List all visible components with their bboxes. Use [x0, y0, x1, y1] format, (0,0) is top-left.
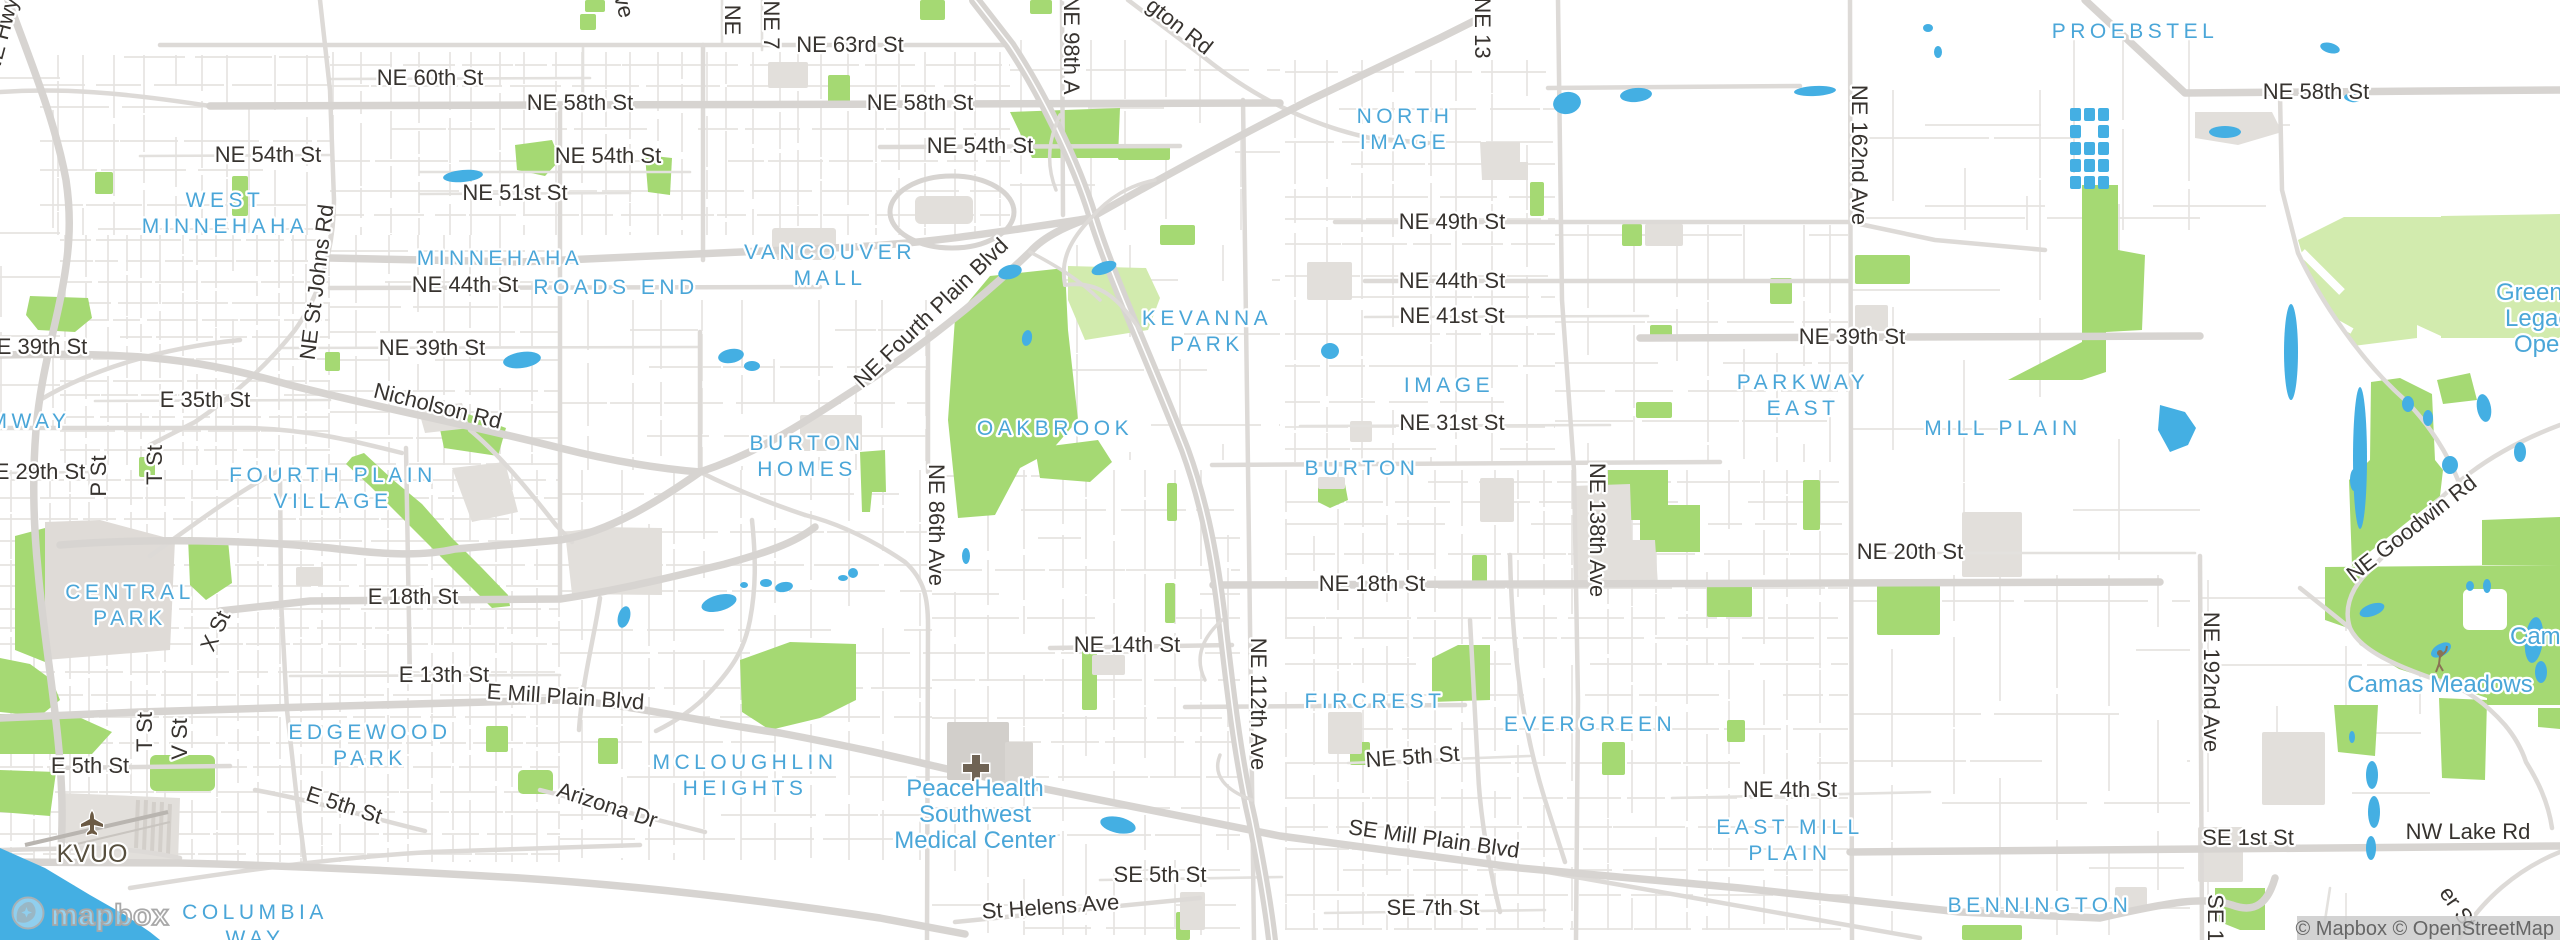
svg-text:BURTON: BURTON [1305, 457, 1420, 480]
svg-text:MILL PLAIN: MILL PLAIN [1924, 417, 2081, 440]
svg-text:OAKBROOK: OAKBROOK [977, 417, 1133, 440]
svg-text:Southwest: Southwest [919, 801, 1031, 828]
svg-text:NE 54th St: NE 54th St [555, 143, 661, 168]
svg-text:NE 39th St: NE 39th St [379, 335, 485, 360]
svg-text:NE 44th St: NE 44th St [412, 272, 518, 297]
svg-text:NE 7: NE 7 [759, 1, 784, 50]
svg-text:P St: P St [86, 455, 111, 496]
svg-text:NE 162nd Ave: NE 162nd Ave [1847, 85, 1872, 225]
svg-text:NE 39th St: NE 39th St [1799, 324, 1905, 349]
svg-text:SE 5th St: SE 5th St [1114, 862, 1207, 887]
svg-text:NE 20th St: NE 20th St [1857, 539, 1963, 564]
svg-text:NE 60th St: NE 60th St [377, 65, 483, 90]
svg-text:NE 138th Ave: NE 138th Ave [1585, 463, 1610, 597]
svg-text:MCLOUGHLIN: MCLOUGHLIN [652, 751, 837, 774]
svg-text:NE 4th St: NE 4th St [1743, 777, 1837, 802]
svg-text:NE 63rd St: NE 63rd St [796, 32, 904, 57]
svg-text:IMAGE: IMAGE [1360, 131, 1450, 154]
svg-text:Legac: Legac [2505, 305, 2560, 332]
svg-text:NE 54th St: NE 54th St [215, 142, 321, 167]
svg-text:E 18th St: E 18th St [368, 584, 459, 609]
svg-text:NE 44th St: NE 44th St [1399, 268, 1505, 293]
svg-text:NE 14th St: NE 14th St [1074, 632, 1180, 657]
svg-text:mapbox: mapbox [51, 899, 169, 932]
svg-text:Open: Open [2514, 331, 2560, 358]
svg-text:Green L: Green L [2496, 279, 2560, 306]
svg-text:NE 51st St: NE 51st St [462, 180, 567, 205]
svg-text:EAST: EAST [1767, 397, 1840, 420]
svg-text:NE 41st St: NE 41st St [1399, 303, 1504, 328]
svg-text:ROADS END: ROADS END [533, 276, 698, 299]
svg-text:NE: NE [720, 5, 745, 36]
svg-text:PARK: PARK [93, 607, 167, 630]
svg-text:CENTRAL: CENTRAL [65, 581, 195, 604]
svg-text:Camp: Camp [2510, 623, 2560, 650]
svg-text:NE 58th St: NE 58th St [867, 90, 973, 115]
svg-text:PARK: PARK [333, 747, 407, 770]
svg-text:PeaceHealth: PeaceHealth [906, 775, 1043, 802]
svg-text:IMAGE: IMAGE [1404, 374, 1494, 397]
svg-text:Camas Meadows: Camas Meadows [2347, 671, 2532, 698]
svg-text:NE 58th St: NE 58th St [527, 90, 633, 115]
svg-text:T St: T St [132, 712, 157, 752]
svg-text:BENNINGTON: BENNINGTON [1948, 894, 2133, 917]
svg-text:SE 7th St: SE 7th St [1387, 895, 1480, 920]
svg-text:V St: V St [167, 718, 192, 760]
svg-text:EDGEWOOD: EDGEWOOD [288, 721, 451, 744]
svg-text:Medical Center: Medical Center [894, 827, 1055, 854]
svg-text:KEVANNA: KEVANNA [1142, 307, 1272, 330]
svg-text:E 13th St: E 13th St [399, 662, 490, 687]
svg-text:NE 86th Ave: NE 86th Ave [924, 464, 949, 586]
svg-text:NE 54th St: NE 54th St [927, 133, 1033, 158]
svg-text:COLUMBIA: COLUMBIA [182, 901, 328, 924]
svg-text:E 35th St: E 35th St [160, 387, 251, 412]
svg-text:NE 98th A: NE 98th A [1059, 0, 1084, 95]
svg-text:WAY: WAY [226, 927, 285, 940]
svg-text:VANCOUVER: VANCOUVER [744, 241, 916, 264]
svg-text:KVUO: KVUO [57, 840, 128, 868]
svg-text:VILLAGE: VILLAGE [273, 490, 392, 513]
svg-text:PARKWAY: PARKWAY [1737, 371, 1870, 394]
svg-text:NE 192nd Ave: NE 192nd Ave [2199, 612, 2224, 752]
svg-text:EVERGREEN: EVERGREEN [1504, 713, 1676, 736]
svg-text:HEIGHTS: HEIGHTS [683, 777, 808, 800]
svg-text:MALL: MALL [794, 267, 867, 290]
svg-text:NE 58th St: NE 58th St [2263, 79, 2369, 104]
svg-text:NE 112th Ave: NE 112th Ave [1246, 638, 1271, 771]
svg-text:MINNEHAHA: MINNEHAHA [142, 215, 309, 238]
svg-text:WEST: WEST [186, 189, 265, 212]
svg-text:E 39th St: E 39th St [0, 334, 87, 359]
svg-text:MWAY: MWAY [0, 410, 71, 433]
svg-text:T St: T St [142, 445, 167, 485]
svg-text:MINNEHAHA: MINNEHAHA [417, 247, 584, 270]
svg-text:NE 49th St: NE 49th St [1399, 209, 1505, 234]
svg-text:PROEBSTEL: PROEBSTEL [2052, 20, 2219, 43]
svg-text:© Mapbox © OpenStreetMap: © Mapbox © OpenStreetMap [2296, 918, 2555, 940]
svg-text:FOURTH PLAIN: FOURTH PLAIN [229, 464, 437, 487]
svg-text:NE 18th St: NE 18th St [1319, 571, 1425, 596]
svg-text:NE 13: NE 13 [1470, 0, 1495, 59]
svg-text:PLAIN: PLAIN [1748, 842, 1831, 865]
svg-text:NORTH: NORTH [1357, 105, 1454, 128]
svg-text:NW Lake Rd: NW Lake Rd [2406, 819, 2531, 844]
svg-text:BURTON: BURTON [750, 432, 865, 455]
svg-text:HOMES: HOMES [757, 458, 857, 481]
svg-text:SE 1: SE 1 [2203, 894, 2228, 940]
svg-text:NE 31st St: NE 31st St [1399, 410, 1504, 435]
svg-text:PARK: PARK [1170, 333, 1244, 356]
svg-text:FIRCREST: FIRCREST [1305, 690, 1446, 713]
svg-text:SE 1st St: SE 1st St [2202, 825, 2294, 850]
svg-text:EAST MILL: EAST MILL [1716, 816, 1864, 839]
svg-text:E 29th St: E 29th St [0, 459, 85, 484]
svg-text:E 5th St: E 5th St [51, 753, 129, 778]
